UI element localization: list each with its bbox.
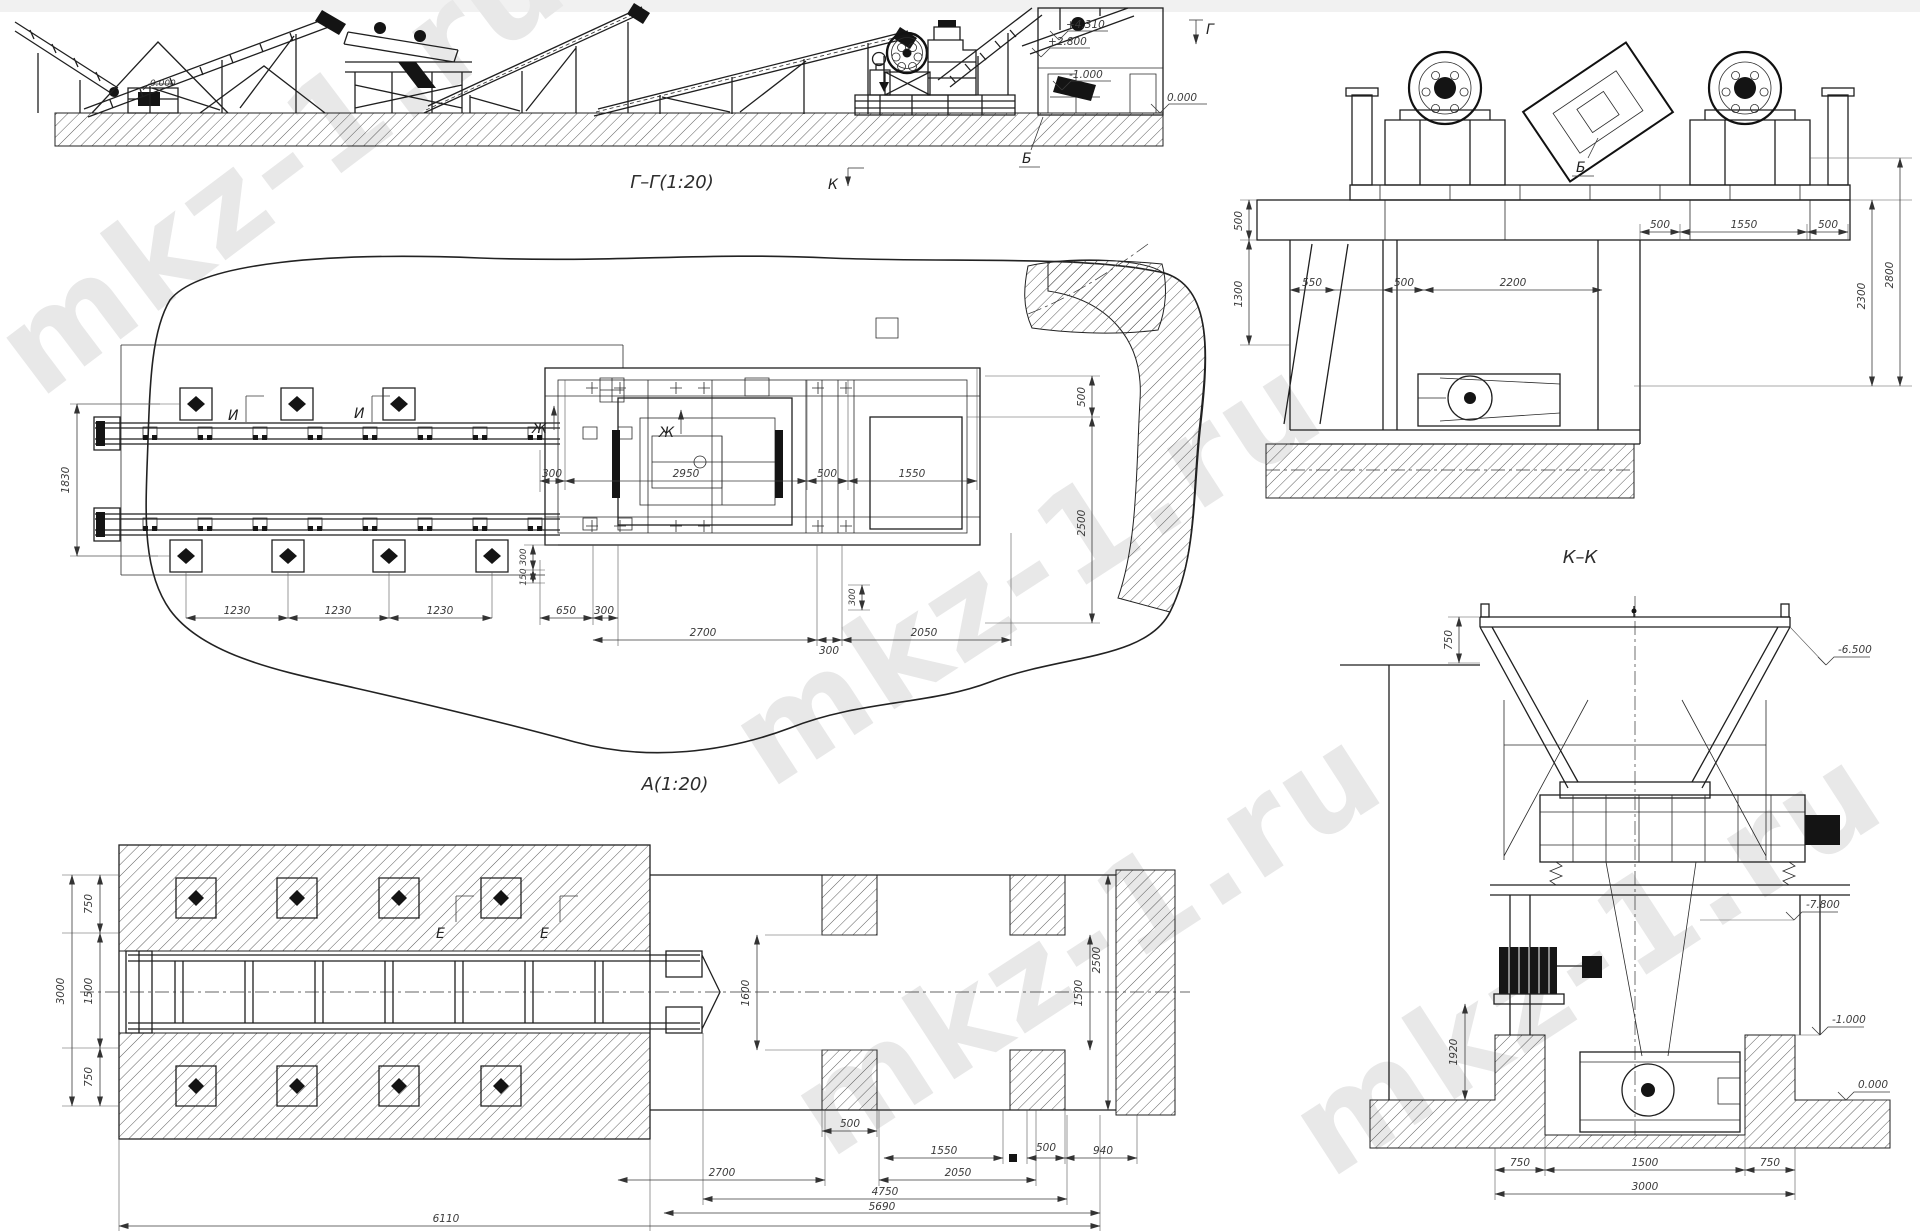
drawing-canvas: mkz-1.ru mkz-1.ru mkz-1.ru mkz-1.ru 0.00… xyxy=(0,0,1920,1231)
dim-text: 750 xyxy=(1760,1157,1780,1169)
dim-text: 1920 xyxy=(1448,1038,1460,1065)
tail-drum-upper xyxy=(96,421,105,446)
dim-text: 1230 xyxy=(427,605,454,617)
pier-hatch xyxy=(1010,1050,1065,1110)
wall-hatch-right xyxy=(1116,870,1175,1115)
dim-text: 300 xyxy=(819,645,839,657)
dim-text: 500 xyxy=(1076,387,1088,407)
section-i-label: И xyxy=(354,406,365,422)
elevation-mark: +4.310 xyxy=(1066,19,1105,31)
dim-text: 750 xyxy=(83,1067,95,1087)
dim-text: 500 xyxy=(1394,277,1414,289)
dim-text: 750 xyxy=(1443,630,1455,650)
feeder-drive xyxy=(1805,815,1840,845)
ground-hatch xyxy=(55,113,1163,146)
dim-text: 2200 xyxy=(1500,277,1527,289)
dim-text: 4750 xyxy=(872,1186,899,1198)
view-title-gg: Г–Г(1:20) xyxy=(630,172,714,193)
dim-text: 500 xyxy=(1818,219,1838,231)
dim-text: 650 xyxy=(556,605,576,617)
tail-drum-lower xyxy=(96,512,105,537)
dim-text: 1830 xyxy=(60,466,72,493)
dim-text: 1550 xyxy=(931,1145,958,1157)
elevation-mark: 0.000 xyxy=(1167,92,1197,104)
view-title-kk: К–К xyxy=(1563,547,1599,568)
dim-text: 750 xyxy=(83,894,95,914)
section-e-label: Е xyxy=(436,926,445,942)
screen-motor-2 xyxy=(414,30,426,42)
pier-hatch xyxy=(1010,875,1065,935)
dim-text: 550 xyxy=(1302,277,1322,289)
dim-text: 1600 xyxy=(740,979,752,1006)
pier-hatch xyxy=(822,1050,877,1110)
dim-text: 2050 xyxy=(911,627,938,639)
dim-text: 1230 xyxy=(325,605,352,617)
elevation-mark: 0.000 xyxy=(1858,1079,1888,1091)
section-i-label: И xyxy=(228,408,239,424)
dim-text: 5690 xyxy=(869,1201,896,1213)
leader-b-label: Б xyxy=(1576,160,1586,176)
dim-text: 500 xyxy=(817,468,837,480)
elevation-mark: +2.800 xyxy=(1048,36,1087,48)
dim-text: 150 xyxy=(519,568,529,585)
dim-text: 750 xyxy=(1510,1157,1530,1169)
dim-text: 2700 xyxy=(690,627,717,639)
dim-text: 2050 xyxy=(945,1167,972,1179)
dim-text: 1300 xyxy=(1233,280,1245,307)
dim-text: 1230 xyxy=(224,605,251,617)
pier-hatch xyxy=(822,875,877,935)
motor-coupling xyxy=(1582,956,1602,978)
elevation-mark: -6.500 xyxy=(1838,644,1872,656)
top-edge-strip xyxy=(0,0,1920,12)
dim-text: 2300 xyxy=(1856,282,1868,309)
dim-text: 300 xyxy=(519,548,529,565)
dim-text: 1550 xyxy=(899,468,926,480)
elevation-mark: -1.000 xyxy=(1069,69,1103,81)
dim-text: 2500 xyxy=(1076,509,1088,536)
elevation-mark: -7.800 xyxy=(1806,899,1840,911)
screen-motor-1 xyxy=(374,22,386,34)
dim-text: 6110 xyxy=(433,1213,460,1225)
dim-text: 2700 xyxy=(709,1167,736,1179)
dim-text: 1500 xyxy=(1632,1157,1659,1169)
dim-text: 500 xyxy=(1650,219,1670,231)
dim-text: 2950 xyxy=(673,468,700,480)
dim-text: 3000 xyxy=(55,977,67,1004)
dim-text: 2500 xyxy=(1091,946,1103,973)
leader-b-label: Б xyxy=(1022,151,1032,167)
section-k-label: К xyxy=(828,177,839,193)
dim-text: 940 xyxy=(1093,1145,1113,1157)
elevation-mark: -1.000 xyxy=(1832,1014,1866,1026)
section-e-label: Е xyxy=(540,926,549,942)
dim-text: 300 xyxy=(848,588,858,605)
dim-text: 500 xyxy=(1233,211,1245,231)
view-title-a: А(1:20) xyxy=(641,774,709,795)
dim-text: 500 xyxy=(1036,1142,1056,1154)
dim-text: 2800 xyxy=(1884,261,1896,288)
crusher-flywheel-hub xyxy=(903,49,912,58)
section-zh-label: Ж xyxy=(658,425,675,441)
section-g-label: Г xyxy=(1206,22,1215,38)
crusher-feed-lip xyxy=(938,20,956,27)
dim-text: 300 xyxy=(594,605,614,617)
pit-ground-hatch xyxy=(1266,444,1634,498)
ground-break-chunk xyxy=(1025,261,1166,334)
dim-text: 1500 xyxy=(1073,979,1085,1006)
drawing-sheet: mkz-1.ru mkz-1.ru mkz-1.ru mkz-1.ru 0.00… xyxy=(0,0,1920,1231)
dim-text: 1550 xyxy=(1731,219,1758,231)
dim-text: 300 xyxy=(542,468,562,480)
dim-text: 500 xyxy=(840,1118,860,1130)
dim-text: 3000 xyxy=(1632,1181,1659,1193)
datum-square xyxy=(1009,1154,1017,1162)
dim-text: 1500 xyxy=(83,977,95,1004)
